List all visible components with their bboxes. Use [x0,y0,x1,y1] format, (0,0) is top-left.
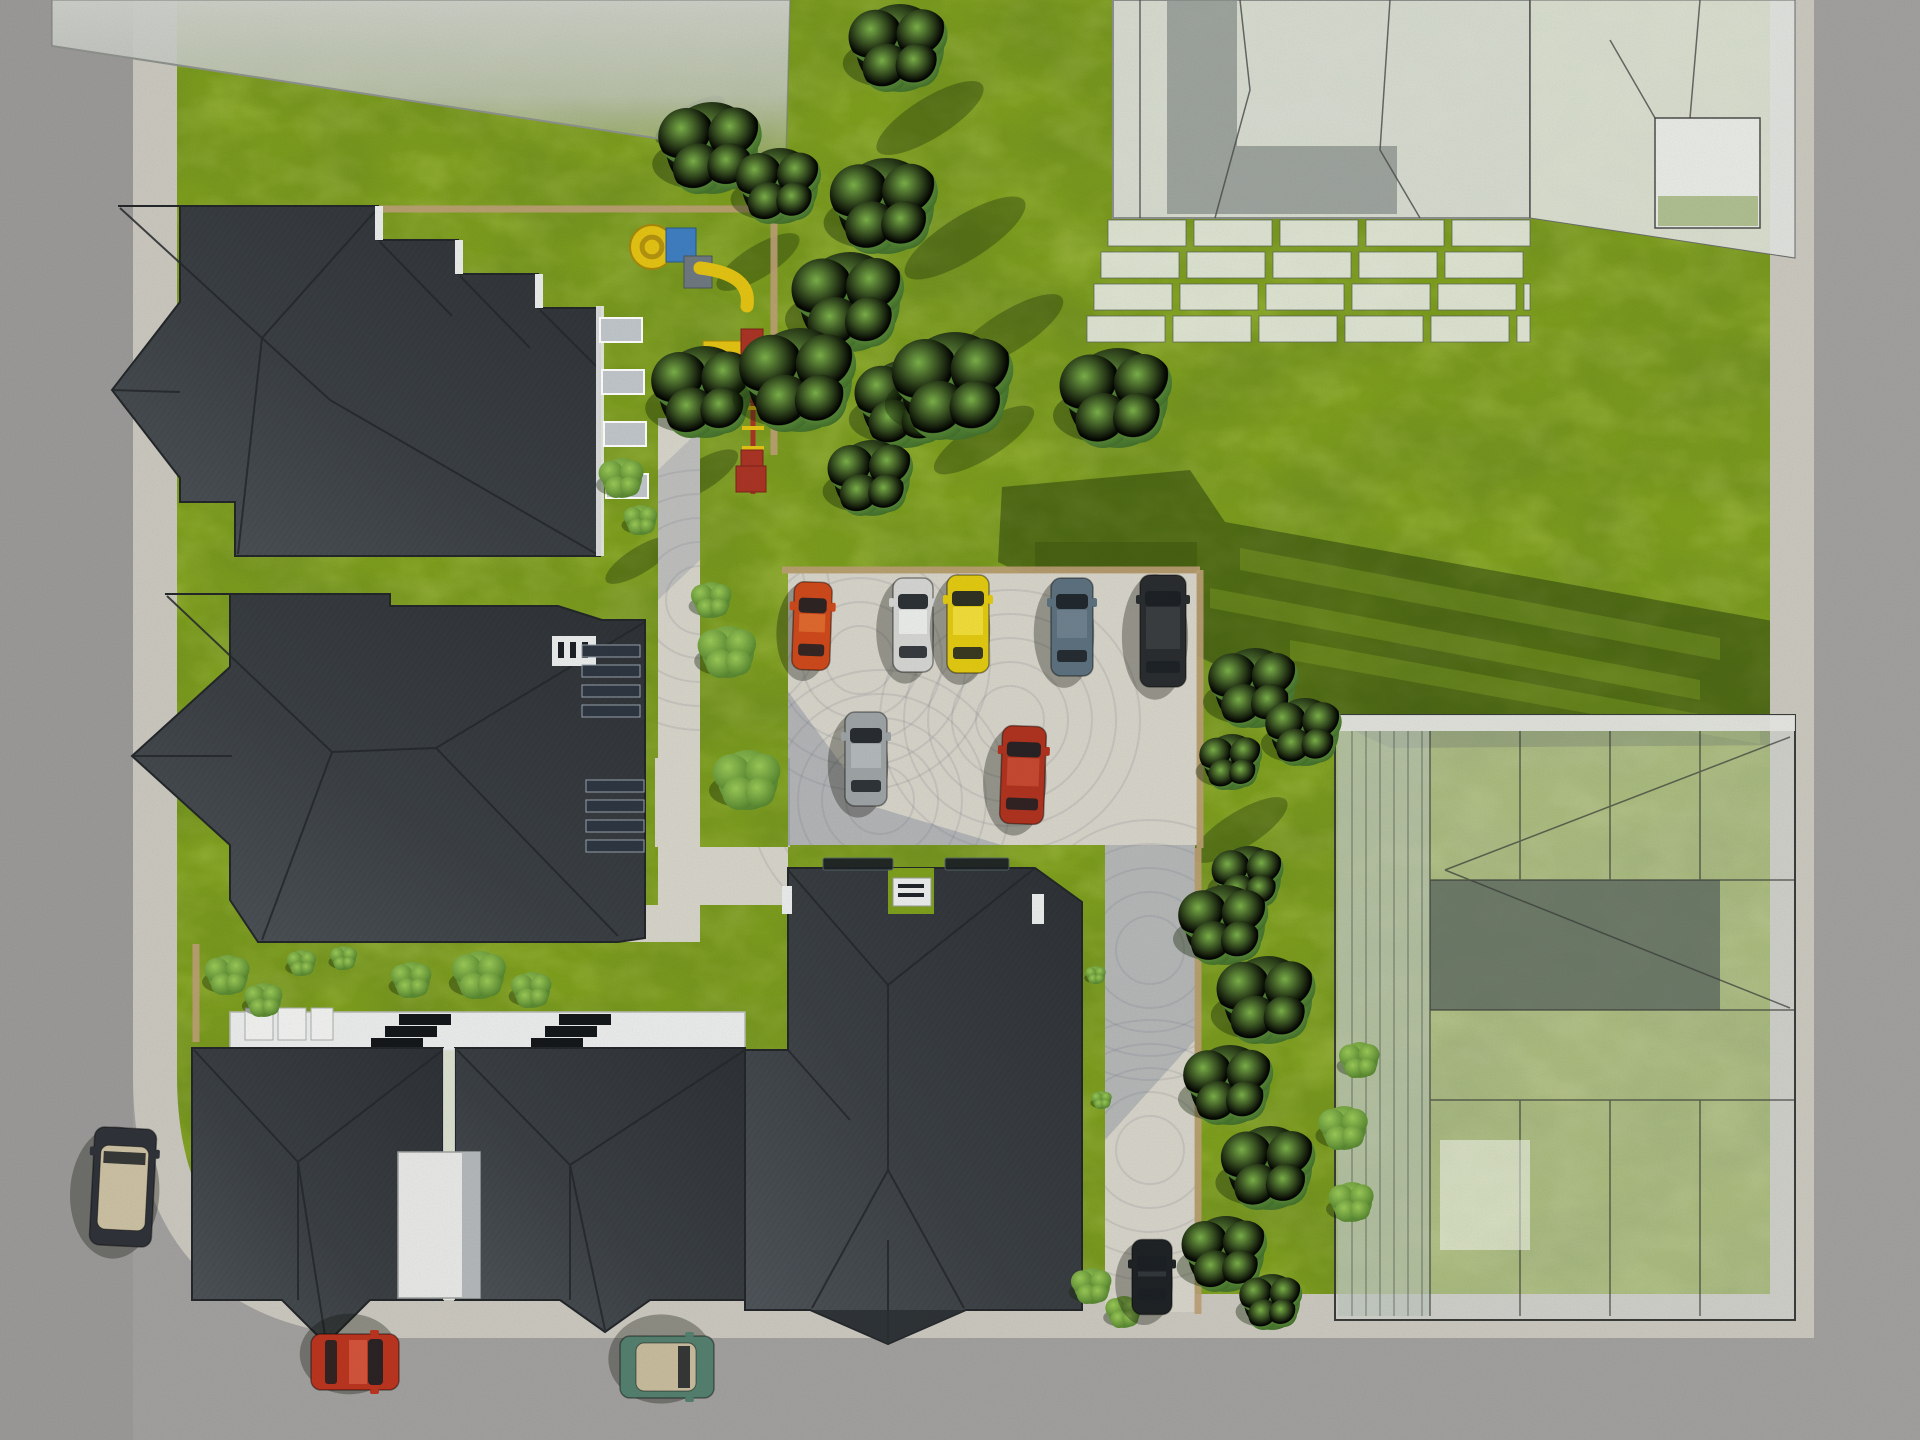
aerial-site-render [0,0,1920,1440]
scene-canvas [0,0,1920,1440]
film-grain [0,0,1920,1440]
